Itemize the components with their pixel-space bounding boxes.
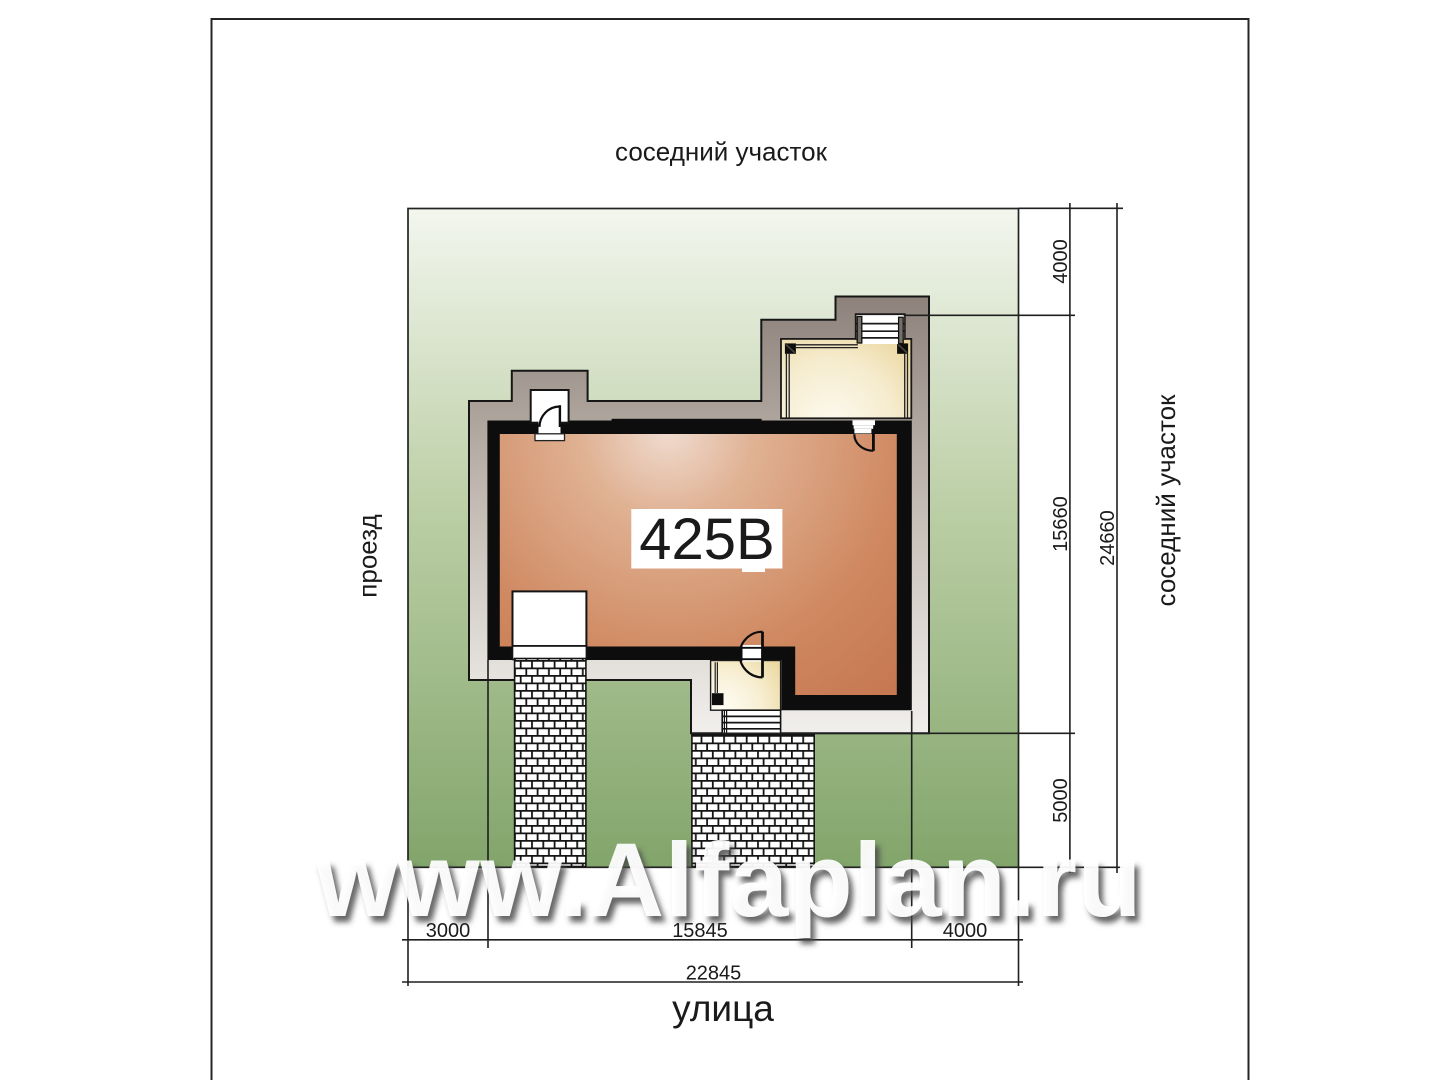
svg-text:соседний участок: соседний участок [615, 137, 828, 167]
svg-text:5000: 5000 [1050, 778, 1072, 823]
svg-text:соседний участок: соседний участок [1151, 394, 1181, 607]
svg-text:улица: улица [672, 988, 774, 1029]
svg-text:4000: 4000 [1050, 239, 1072, 284]
svg-text:www.Alfaplan.ru: www.Alfaplan.ru [315, 822, 1142, 939]
svg-text:проезд: проезд [353, 514, 383, 597]
svg-text:425В: 425В [639, 507, 774, 572]
svg-text:22845: 22845 [686, 963, 742, 985]
svg-text:24660: 24660 [1097, 510, 1119, 566]
svg-text:15660: 15660 [1050, 496, 1072, 552]
